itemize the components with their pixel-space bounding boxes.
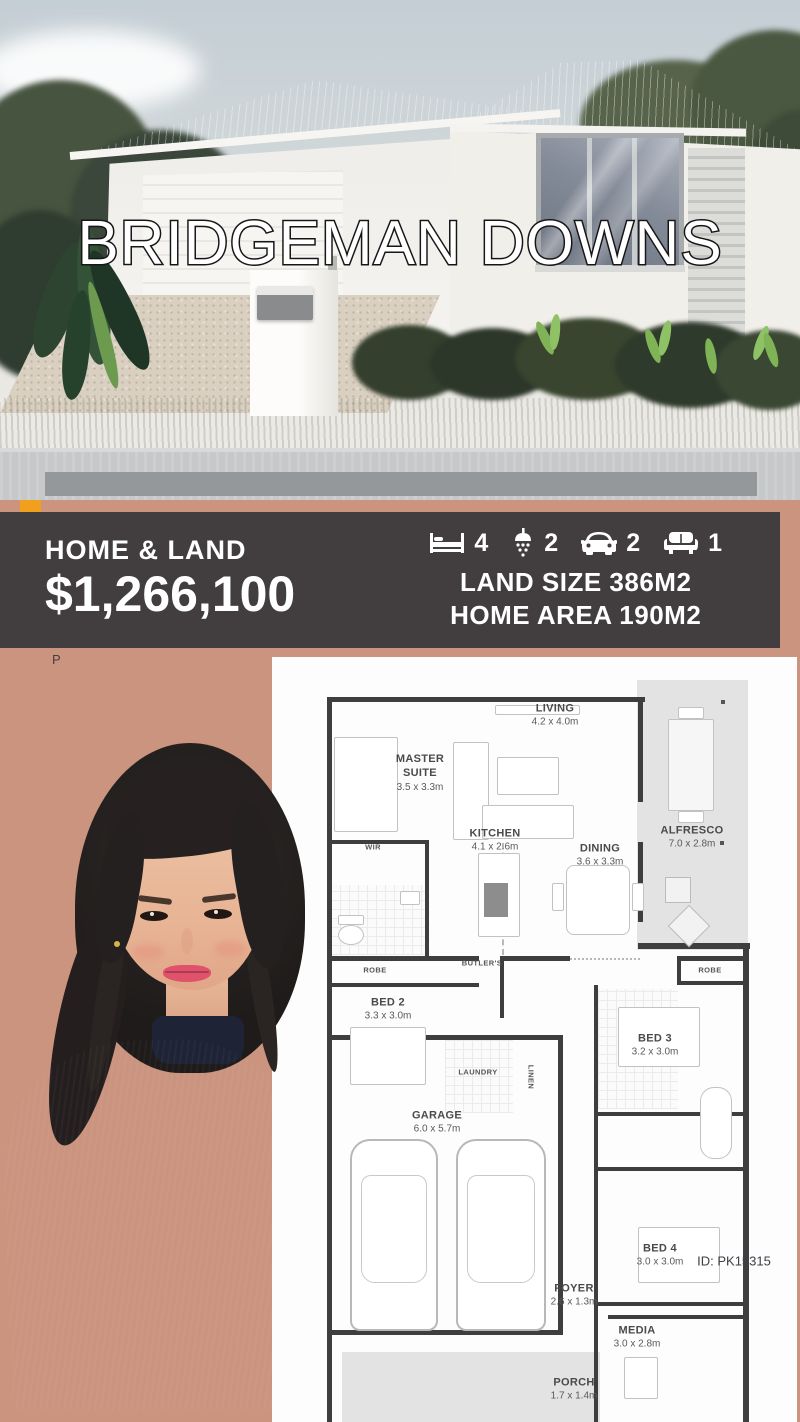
- sweater-torso: [0, 1035, 306, 1421]
- media-table: [624, 1357, 658, 1399]
- mailbox: [257, 286, 313, 320]
- room-media: MEDIA 3.0 x 2.8m: [614, 1323, 661, 1350]
- hero-photo: BRIDGEMAN DOWNS: [0, 0, 800, 500]
- basin: [400, 891, 420, 905]
- wall: [638, 943, 750, 949]
- car-outline: [350, 1139, 438, 1331]
- divider-strip: [0, 500, 800, 512]
- bed-icon: [429, 530, 465, 556]
- kitchen-appliance: [484, 883, 508, 917]
- nose-shading: [181, 928, 193, 954]
- car-count: 2: [626, 529, 640, 558]
- room-bed3: BED 3 3.2 x 3.0m: [632, 1031, 679, 1058]
- living-count: 1: [708, 529, 722, 558]
- alfresco-chair: [678, 707, 704, 719]
- wall: [677, 956, 681, 985]
- listing-type-label: HOME & LAND: [45, 536, 295, 566]
- room-alfresco: ALFRESCO 7.0 x 2.8m: [661, 823, 724, 850]
- room-bed4: BED 4 3.0 x 3.0m: [637, 1241, 684, 1268]
- coffee-table: [497, 757, 559, 795]
- room-living: LIVING 4.2 x 4.0m: [532, 701, 579, 728]
- eye: [204, 909, 232, 919]
- dining-chair: [632, 883, 644, 911]
- feature-cars: 2: [581, 529, 640, 558]
- wall: [594, 1302, 747, 1306]
- room-foyer: FOYER 2.6 x 1.3m: [551, 1281, 598, 1308]
- wall: [677, 981, 743, 985]
- wall: [743, 943, 749, 1422]
- wall: [677, 956, 743, 961]
- floor-plan: MASTER SUITE 3.5 x 3.3m LIVING 4.2 x 4.0…: [272, 657, 797, 1422]
- blush: [132, 944, 164, 960]
- car-cabin: [361, 1175, 427, 1283]
- room-porch: PORCH 1.7 x 1.4m: [551, 1375, 598, 1402]
- dining-table: [566, 865, 630, 935]
- label-robe-left: ROBE: [363, 966, 386, 975]
- features-row: 4 2: [429, 528, 722, 558]
- flyer-page: BRIDGEMAN DOWNS HOME & LAND $1,266,100: [0, 0, 800, 1422]
- opening-dotted: [570, 958, 640, 960]
- label-robe-right: ROBE: [698, 966, 721, 975]
- label-laundry: LAUNDRY: [458, 1068, 497, 1077]
- wall: [425, 840, 429, 960]
- wall: [327, 983, 479, 987]
- toilet: [338, 925, 364, 945]
- eye: [140, 911, 168, 921]
- lips: [163, 965, 211, 982]
- suburb-title: BRIDGEMAN DOWNS: [77, 209, 722, 278]
- label-linen: LINEN: [527, 1065, 536, 1090]
- master-bed: [334, 737, 398, 832]
- bath-count: 2: [544, 529, 558, 558]
- room-kitchen: KITCHEN 4.1 x 2.6m: [470, 826, 521, 853]
- feature-baths: 2: [511, 528, 558, 558]
- wall: [594, 1167, 747, 1171]
- car-outline: [456, 1139, 546, 1331]
- wall: [638, 697, 643, 802]
- alfresco-side-table: [665, 877, 691, 903]
- room-master-suite: MASTER SUITE 3.5 x 3.3m: [396, 752, 444, 794]
- car-icon: [581, 530, 617, 556]
- price-band: HOME & LAND $1,266,100 4: [0, 512, 780, 648]
- home-area-label: HOME AREA 190M2: [450, 599, 701, 632]
- alfresco-table: [668, 719, 714, 811]
- plan-marker: [721, 700, 725, 704]
- bed2-bed: [350, 1027, 426, 1085]
- feature-living: 1: [663, 529, 722, 558]
- alfresco-chair: [678, 811, 704, 823]
- land-size-label: LAND SIZE 386M2: [460, 566, 691, 599]
- shower-icon: [511, 528, 535, 558]
- wall: [327, 697, 645, 702]
- wall: [327, 697, 332, 1422]
- price-value: $1,266,100: [45, 566, 295, 624]
- lip-line: [165, 971, 209, 973]
- dining-chair: [552, 883, 564, 911]
- blush: [214, 941, 246, 957]
- earring: [114, 941, 120, 947]
- accent-orange-square: [20, 500, 41, 512]
- plan-id-label: ID: PK15315: [697, 1254, 771, 1269]
- label-wir: WIR: [365, 843, 381, 852]
- wall: [608, 1315, 747, 1319]
- wall: [327, 956, 479, 961]
- eye-highlight: [150, 912, 154, 916]
- wall: [500, 956, 570, 961]
- bed-count: 4: [474, 529, 488, 558]
- price-block: HOME & LAND $1,266,100: [45, 536, 295, 623]
- eye-highlight: [214, 910, 218, 914]
- agent-portrait: [0, 648, 310, 1422]
- car-cabin: [467, 1175, 535, 1283]
- room-bed2: BED 2 3.3 x 3.0m: [365, 995, 412, 1022]
- feature-beds: 4: [429, 529, 488, 558]
- wall: [594, 985, 598, 1422]
- toilet-tank: [338, 915, 364, 925]
- room-garage: GARAGE 6.0 x 5.7m: [412, 1108, 462, 1135]
- curb-bar: [45, 472, 757, 496]
- bathtub: [700, 1087, 732, 1159]
- sofa-icon: [663, 531, 699, 555]
- room-dining: DINING 3.6 x 3.3m: [577, 841, 624, 868]
- features-block: 4 2: [429, 528, 722, 632]
- label-butlers: BUTLER'S: [462, 959, 502, 968]
- photo-crop-strip: [0, 1410, 272, 1422]
- hero-title-art: BRIDGEMAN DOWNS: [0, 198, 800, 290]
- bottom-section: P: [0, 648, 800, 1422]
